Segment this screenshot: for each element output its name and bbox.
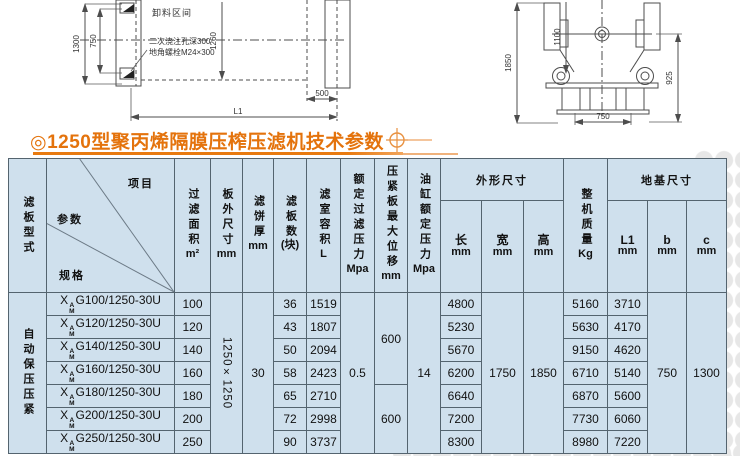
- header-c: cmm: [687, 201, 727, 293]
- cell-plates: 72: [274, 408, 307, 431]
- table-row: 自动保压压紧 XAMG100/1250-30U 100 1250×1250 30…: [9, 293, 727, 316]
- header-cake-label: 滤饼厚: [253, 195, 264, 240]
- note-line2: 地角螺栓M24×300: [149, 47, 215, 57]
- header-cylinder-pressure: 油缸额定压力Mpa: [408, 159, 441, 293]
- cell-length: 5670: [441, 339, 482, 362]
- cell-volume: 2423: [307, 362, 341, 385]
- cell-length: 6200: [441, 362, 482, 385]
- header-displacement-unit: mm: [375, 270, 407, 282]
- spec-x: X: [60, 316, 68, 330]
- cell-l1: 4620: [608, 339, 648, 362]
- header-weight: 整机质量Kg: [564, 159, 608, 293]
- spec-supsub: AM: [69, 441, 74, 453]
- cell-b: 750: [648, 293, 687, 454]
- header-height: 高mm: [524, 201, 564, 293]
- technical-drawings: 1300 750 卸料区间 1260 二次浇注孔深300 地角螺栓M24×300: [0, 0, 740, 127]
- cell-spec: XAMG140/1250-30U: [47, 339, 175, 362]
- header-length-unit: mm: [441, 246, 481, 258]
- cell-spec: XAMG120/1250-30U: [47, 316, 175, 339]
- spec-body: G100/1250-30U: [76, 293, 161, 307]
- cell-area: 200: [175, 408, 211, 431]
- header-cylinder-pressure-unit: Mpa: [408, 263, 440, 275]
- cell-height: 1850: [524, 293, 564, 454]
- header-plate-size-unit: mm: [211, 248, 242, 260]
- dim-925: 925: [665, 71, 674, 85]
- cell-weight: 9150: [564, 339, 608, 362]
- header-weight-unit: Kg: [564, 248, 607, 260]
- cell-width: 1750: [482, 293, 524, 454]
- spec-supsub: AM: [69, 303, 74, 315]
- header-width: 宽mm: [482, 201, 524, 293]
- spec-body: G200/1250-30U: [76, 408, 161, 422]
- cell-weight: 7730: [564, 408, 608, 431]
- cell-displacement-top: 600: [375, 293, 408, 385]
- dim-750-right: 750: [596, 112, 610, 121]
- note-line1: 二次浇注孔深300: [149, 36, 211, 46]
- cell-spec: XAMG200/1250-30U: [47, 408, 175, 431]
- cell-cylinder-pressure: 14: [408, 293, 441, 454]
- dim-1100: 1100: [553, 28, 562, 46]
- cell-l1: 4170: [608, 316, 648, 339]
- cell-area: 160: [175, 362, 211, 385]
- cell-area: 140: [175, 339, 211, 362]
- dim-1300: 1300: [72, 35, 81, 53]
- cell-plate-size: 1250×1250: [211, 293, 243, 454]
- header-plate-size-label: 板外尺寸: [221, 188, 232, 248]
- cell-volume: 3737: [307, 431, 341, 454]
- header-item-label: 项目: [128, 175, 154, 191]
- spec-body: G120/1250-30U: [76, 316, 161, 330]
- header-volume: 滤室容积L: [307, 159, 341, 293]
- cell-l1: 5140: [608, 362, 648, 385]
- header-l1-unit: mm: [608, 245, 647, 257]
- header-width-unit: mm: [482, 246, 523, 258]
- dim-1850: 1850: [504, 54, 513, 72]
- header-dims-group: 外形尺寸: [441, 159, 564, 201]
- cell-area: 120: [175, 316, 211, 339]
- cell-area: 180: [175, 385, 211, 408]
- cell-volume: 1519: [307, 293, 341, 316]
- title-underline: [33, 152, 403, 155]
- cell-spec: XAMG100/1250-30U: [47, 293, 175, 316]
- header-plates: 滤板数(块): [274, 159, 307, 293]
- cell-weight: 5630: [564, 316, 608, 339]
- spec-supsub: AM: [69, 372, 74, 384]
- header-c-unit: mm: [687, 245, 726, 257]
- header-foundation-group: 地基尺寸: [608, 159, 727, 201]
- header-volume-unit: L: [307, 248, 340, 260]
- spec-body: G180/1250-30U: [76, 385, 161, 399]
- cell-volume: 1807: [307, 316, 341, 339]
- section-title: ◎1250型聚丙烯隔膜压榨压滤机技术参数: [30, 127, 384, 154]
- header-weight-label: 整机质量: [580, 188, 591, 248]
- spec-supsub: AM: [69, 349, 74, 361]
- cell-plates: 90: [274, 431, 307, 454]
- crosshair-icon: [382, 126, 434, 154]
- header-plate-type-label: 滤板型式: [22, 196, 33, 256]
- cell-plates: 43: [274, 316, 307, 339]
- cell-length: 8300: [441, 431, 482, 454]
- header-plates-unit: (块): [274, 236, 306, 252]
- header-param-label: 参数: [57, 211, 83, 227]
- spec-supsub: AM: [69, 326, 74, 338]
- spec-x: X: [60, 339, 68, 353]
- parameters-table: 滤板型式 项目 参数 规格 过滤面积m² 板外尺寸mm 滤饼厚mm 滤板数(块)…: [8, 158, 727, 454]
- spec-x: X: [60, 362, 68, 376]
- header-displacement-label: 压紧板最大位移: [386, 165, 397, 270]
- spec-body: G140/1250-30U: [76, 339, 161, 353]
- cell-plates: 36: [274, 293, 307, 316]
- header-b: bmm: [648, 201, 687, 293]
- cell-c: 1300: [687, 293, 727, 454]
- cell-cake: 30: [243, 293, 274, 454]
- cell-weight: 6870: [564, 385, 608, 408]
- dim-L1: L1: [234, 107, 243, 116]
- header-filter-pressure-unit: Mpa: [341, 263, 374, 275]
- cell-l1: 7220: [608, 431, 648, 454]
- cell-volume: 2094: [307, 339, 341, 362]
- cell-length: 4800: [441, 293, 482, 316]
- header-cake-unit: mm: [243, 240, 273, 252]
- header-cake: 滤饼厚mm: [243, 159, 274, 293]
- cell-weight: 8980: [564, 431, 608, 454]
- foundation-plan-drawing: 1300 750 卸料区间 1260 二次浇注孔深300 地角螺栓M24×300: [72, 0, 350, 121]
- header-area: 过滤面积m²: [175, 159, 211, 293]
- dim-500: 500: [315, 89, 329, 98]
- header-filter-pressure: 额定过滤压力Mpa: [341, 159, 375, 293]
- header-filter-pressure-label: 额定过滤压力: [352, 173, 363, 263]
- spec-x: X: [60, 385, 68, 399]
- cell-plate-type: 自动保压压紧: [9, 293, 47, 454]
- cell-volume: 2710: [307, 385, 341, 408]
- spec-x: X: [60, 408, 68, 422]
- plate-size-value: 1250×1250: [221, 337, 233, 409]
- header-plates-label: 滤板数: [285, 195, 296, 240]
- cell-spec: XAMG160/1250-30U: [47, 362, 175, 385]
- header-l1: L1mm: [608, 201, 648, 293]
- cell-l1: 3710: [608, 293, 648, 316]
- cell-spec: XAMG250/1250-30U: [47, 431, 175, 454]
- cell-l1: 5600: [608, 385, 648, 408]
- header-displacement: 压紧板最大位移mm: [375, 159, 408, 293]
- section-title-row: ◎1250型聚丙烯隔膜压榨压滤机技术参数: [30, 127, 384, 154]
- plate-type-value: 自动保压压紧: [22, 328, 33, 418]
- cell-weight: 6710: [564, 362, 608, 385]
- cell-length: 5230: [441, 316, 482, 339]
- header-area-unit: m²: [175, 248, 210, 260]
- header-area-label: 过滤面积: [187, 188, 198, 248]
- cell-spec: XAMG180/1250-30U: [47, 385, 175, 408]
- header-volume-label: 滤室容积: [318, 188, 329, 248]
- cell-l1: 6060: [608, 408, 648, 431]
- header-height-unit: mm: [524, 246, 563, 258]
- spec-supsub: AM: [69, 395, 74, 407]
- spec-body: G250/1250-30U: [76, 431, 161, 445]
- header-plate-size: 板外尺寸mm: [211, 159, 243, 293]
- end-view-drawing: 1850 1100: [504, 0, 682, 125]
- spec-x: X: [60, 293, 68, 307]
- cell-plates: 50: [274, 339, 307, 362]
- page: 1300 750 卸料区间 1260 二次浇注孔深300 地角螺栓M24×300: [0, 0, 740, 456]
- cell-displacement-bottom: 600: [375, 385, 408, 454]
- cell-area: 250: [175, 431, 211, 454]
- spec-body: G160/1250-30U: [76, 362, 161, 376]
- unload-zone-label: 卸料区间: [152, 7, 192, 18]
- header-spec-label: 规格: [59, 267, 85, 283]
- cell-filter-pressure: 0.5: [341, 293, 375, 454]
- cell-volume: 2998: [307, 408, 341, 431]
- header-cylinder-pressure-label: 油缸额定压力: [419, 173, 430, 263]
- cell-weight: 5160: [564, 293, 608, 316]
- cell-plates: 58: [274, 362, 307, 385]
- header-diagonal-cell: 项目 参数 规格: [47, 159, 175, 293]
- cell-length: 6640: [441, 385, 482, 408]
- cell-length: 7200: [441, 408, 482, 431]
- header-plate-type: 滤板型式: [9, 159, 47, 293]
- spec-supsub: AM: [69, 418, 74, 430]
- cell-area: 100: [175, 293, 211, 316]
- dim-750-left: 750: [89, 34, 98, 48]
- header-length: 长mm: [441, 201, 482, 293]
- spec-x: X: [60, 431, 68, 445]
- header-b-unit: mm: [648, 245, 686, 257]
- cell-plates: 65: [274, 385, 307, 408]
